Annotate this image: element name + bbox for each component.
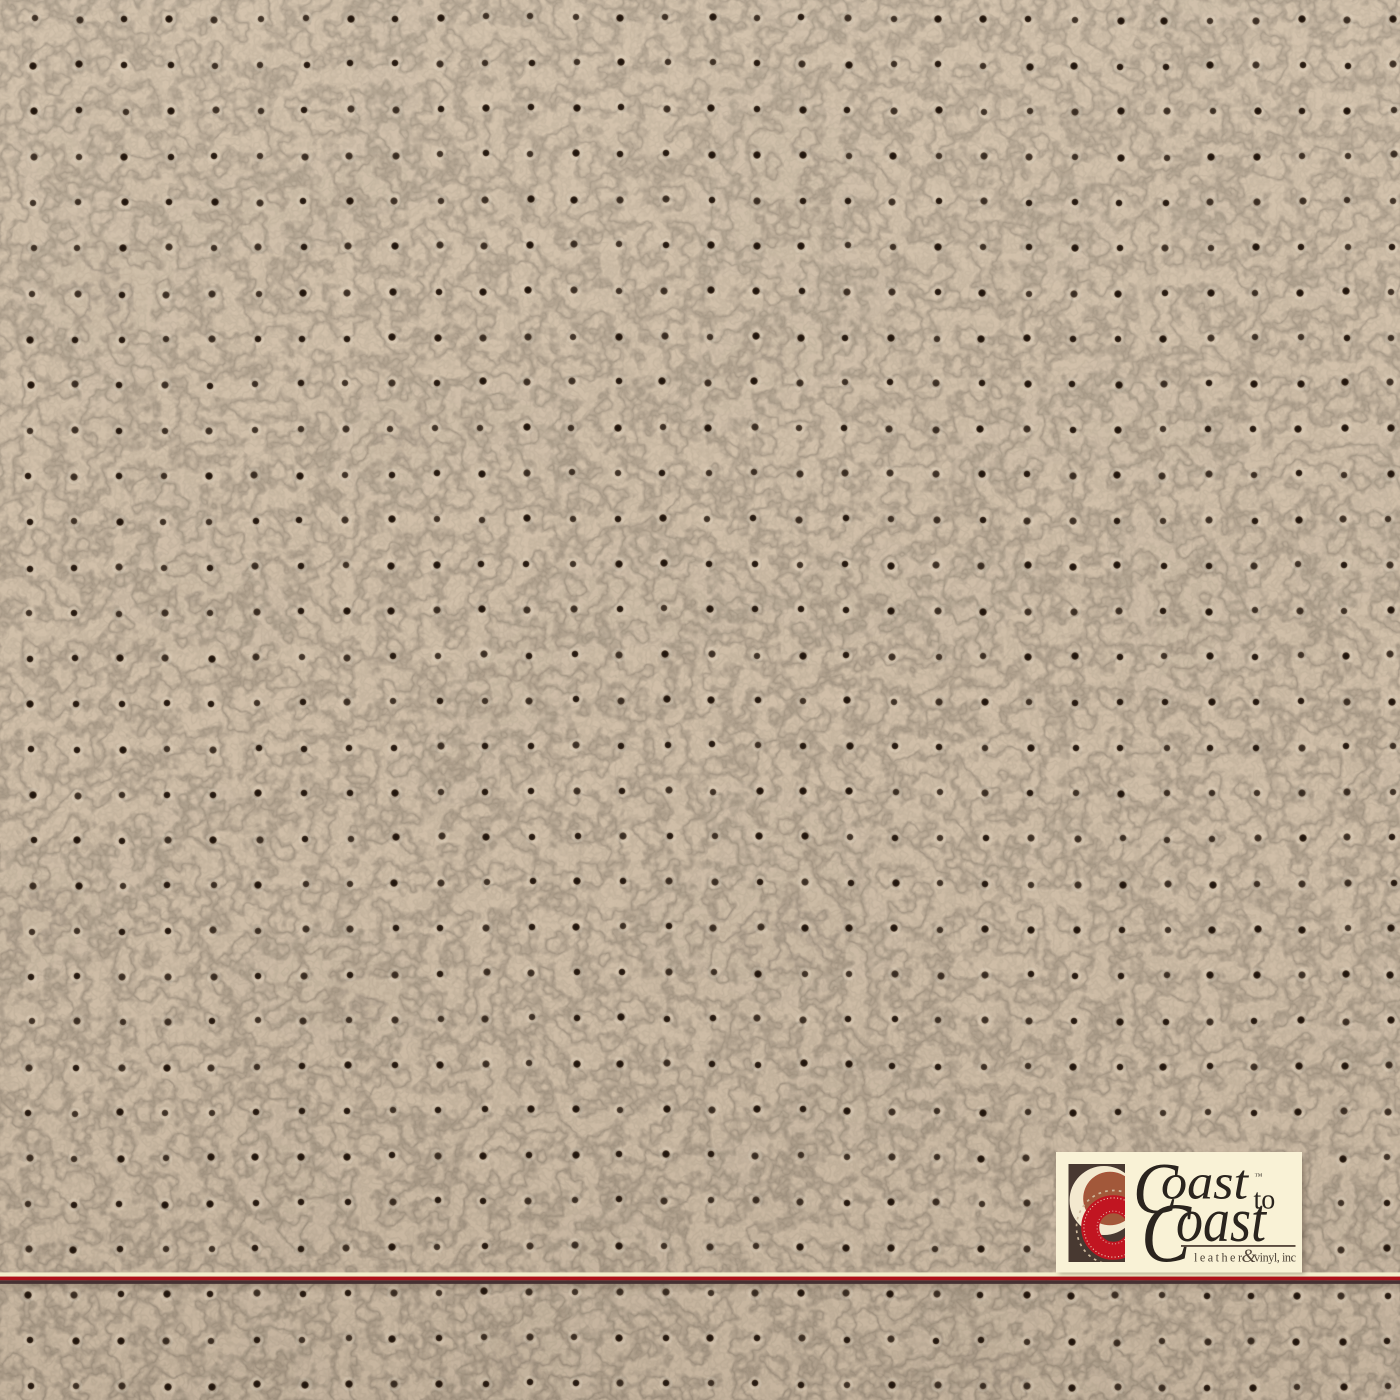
svg-text:™: ™ — [1255, 1172, 1263, 1181]
svg-text:vinyl, inc: vinyl, inc — [1254, 1250, 1297, 1264]
svg-text:oast: oast — [1176, 1187, 1268, 1255]
svg-text:leather: leather — [1194, 1250, 1242, 1264]
